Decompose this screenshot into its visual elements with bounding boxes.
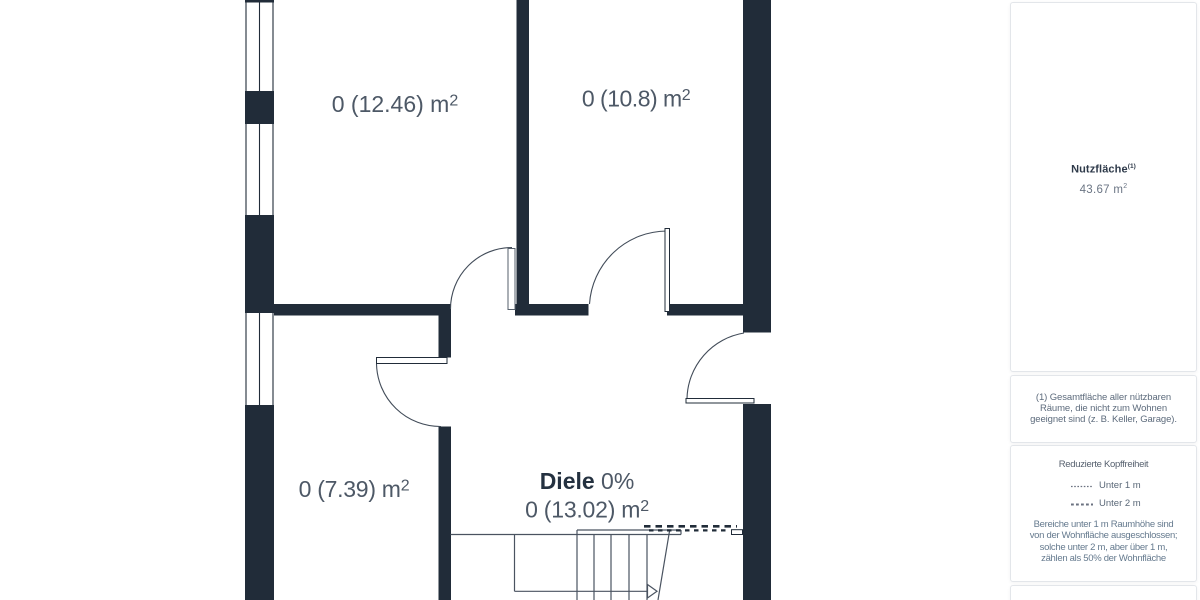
svg-text:0 (12.46) m2: 0 (12.46) m2 [332,91,459,117]
svg-text:0 (13.02) m2: 0 (13.02) m2 [525,496,649,522]
svg-text:Diele 0%: Diele 0% [540,468,635,494]
svg-text:0 (7.39) m2: 0 (7.39) m2 [299,476,410,502]
svg-text:0 (10.8) m2: 0 (10.8) m2 [582,86,691,112]
